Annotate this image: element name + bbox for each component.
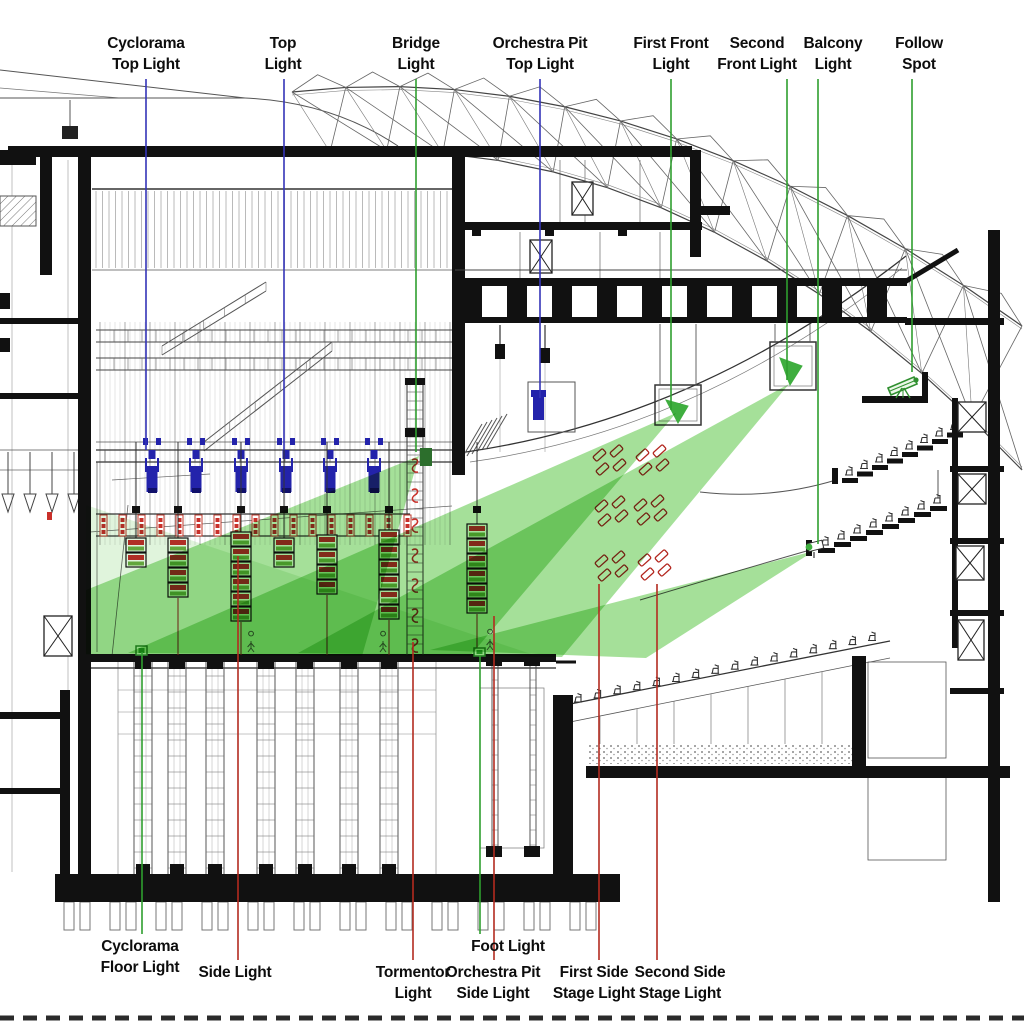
label-line: Bridge (392, 33, 440, 54)
label-bridge-light: Bridge Light (392, 33, 440, 75)
label-line: Cyclorama (107, 33, 184, 54)
label-line: Foot Light (471, 936, 545, 957)
label-line: Stage Light (553, 983, 635, 1004)
batten-fixture-strip (195, 515, 202, 536)
label-follow-spot: Follow Spot (895, 33, 943, 75)
batten-fixture-strip (214, 515, 221, 536)
theater-section-diagram: Cyclorama Top Light Top Light Bridge Lig… (0, 0, 1024, 1024)
label-top-light: Top Light (265, 33, 302, 75)
label-line: Stage Light (635, 983, 726, 1004)
label-first-side-stage-light: First Side Stage Light (553, 962, 635, 1004)
label-line: Tormentor (376, 962, 451, 983)
label-line: First Front (633, 33, 708, 54)
label-line: Light (804, 54, 863, 75)
label-line: Cyclorama (101, 936, 180, 957)
label-tormentor-light: Tormentor Light (376, 962, 451, 1004)
batten-fixture-strip (176, 515, 183, 536)
label-line: Light (265, 54, 302, 75)
label-line: Second Side (635, 962, 726, 983)
label-line: Top (265, 33, 302, 54)
label-line: Second (717, 33, 797, 54)
follow-spot-fixture (888, 377, 919, 398)
label-line: Light (633, 54, 708, 75)
label-line: Orchestra Pit (493, 33, 588, 54)
label-second-front-light: Second Front Light (717, 33, 797, 75)
label-line: Side Light (446, 983, 541, 1004)
label-foot-light: Foot Light (471, 936, 545, 957)
label-second-side-stage-light: Second Side Stage Light (635, 962, 726, 1004)
label-orchestra-pit-top-light: Orchestra Pit Top Light (493, 33, 588, 75)
top-light-fixture (187, 438, 205, 493)
label-line: Floor Light (101, 957, 180, 978)
label-line: Front Light (717, 54, 797, 75)
label-line: Light (376, 983, 451, 1004)
label-balcony-light: Balcony Light (804, 33, 863, 75)
label-line: Top Light (107, 54, 184, 75)
label-line: First Side (553, 962, 635, 983)
label-line: Orchestra Pit (446, 962, 541, 983)
section-drawing (0, 0, 1024, 1024)
label-cyclorama-floor-light: Cyclorama Floor Light (101, 936, 180, 978)
label-line: Light (392, 54, 440, 75)
label-line: Follow (895, 33, 943, 54)
top-light-fixture (277, 438, 295, 493)
label-line: Side Light (199, 962, 272, 983)
label-cyclorama-top-light: Cyclorama Top Light (107, 33, 184, 75)
label-first-front-light: First Front Light (633, 33, 708, 75)
label-line: Spot (895, 54, 943, 75)
label-line: Balcony (804, 33, 863, 54)
label-line: Top Light (493, 54, 588, 75)
label-side-light: Side Light (199, 962, 272, 983)
label-orchestra-pit-side-light: Orchestra Pit Side Light (446, 962, 541, 1004)
